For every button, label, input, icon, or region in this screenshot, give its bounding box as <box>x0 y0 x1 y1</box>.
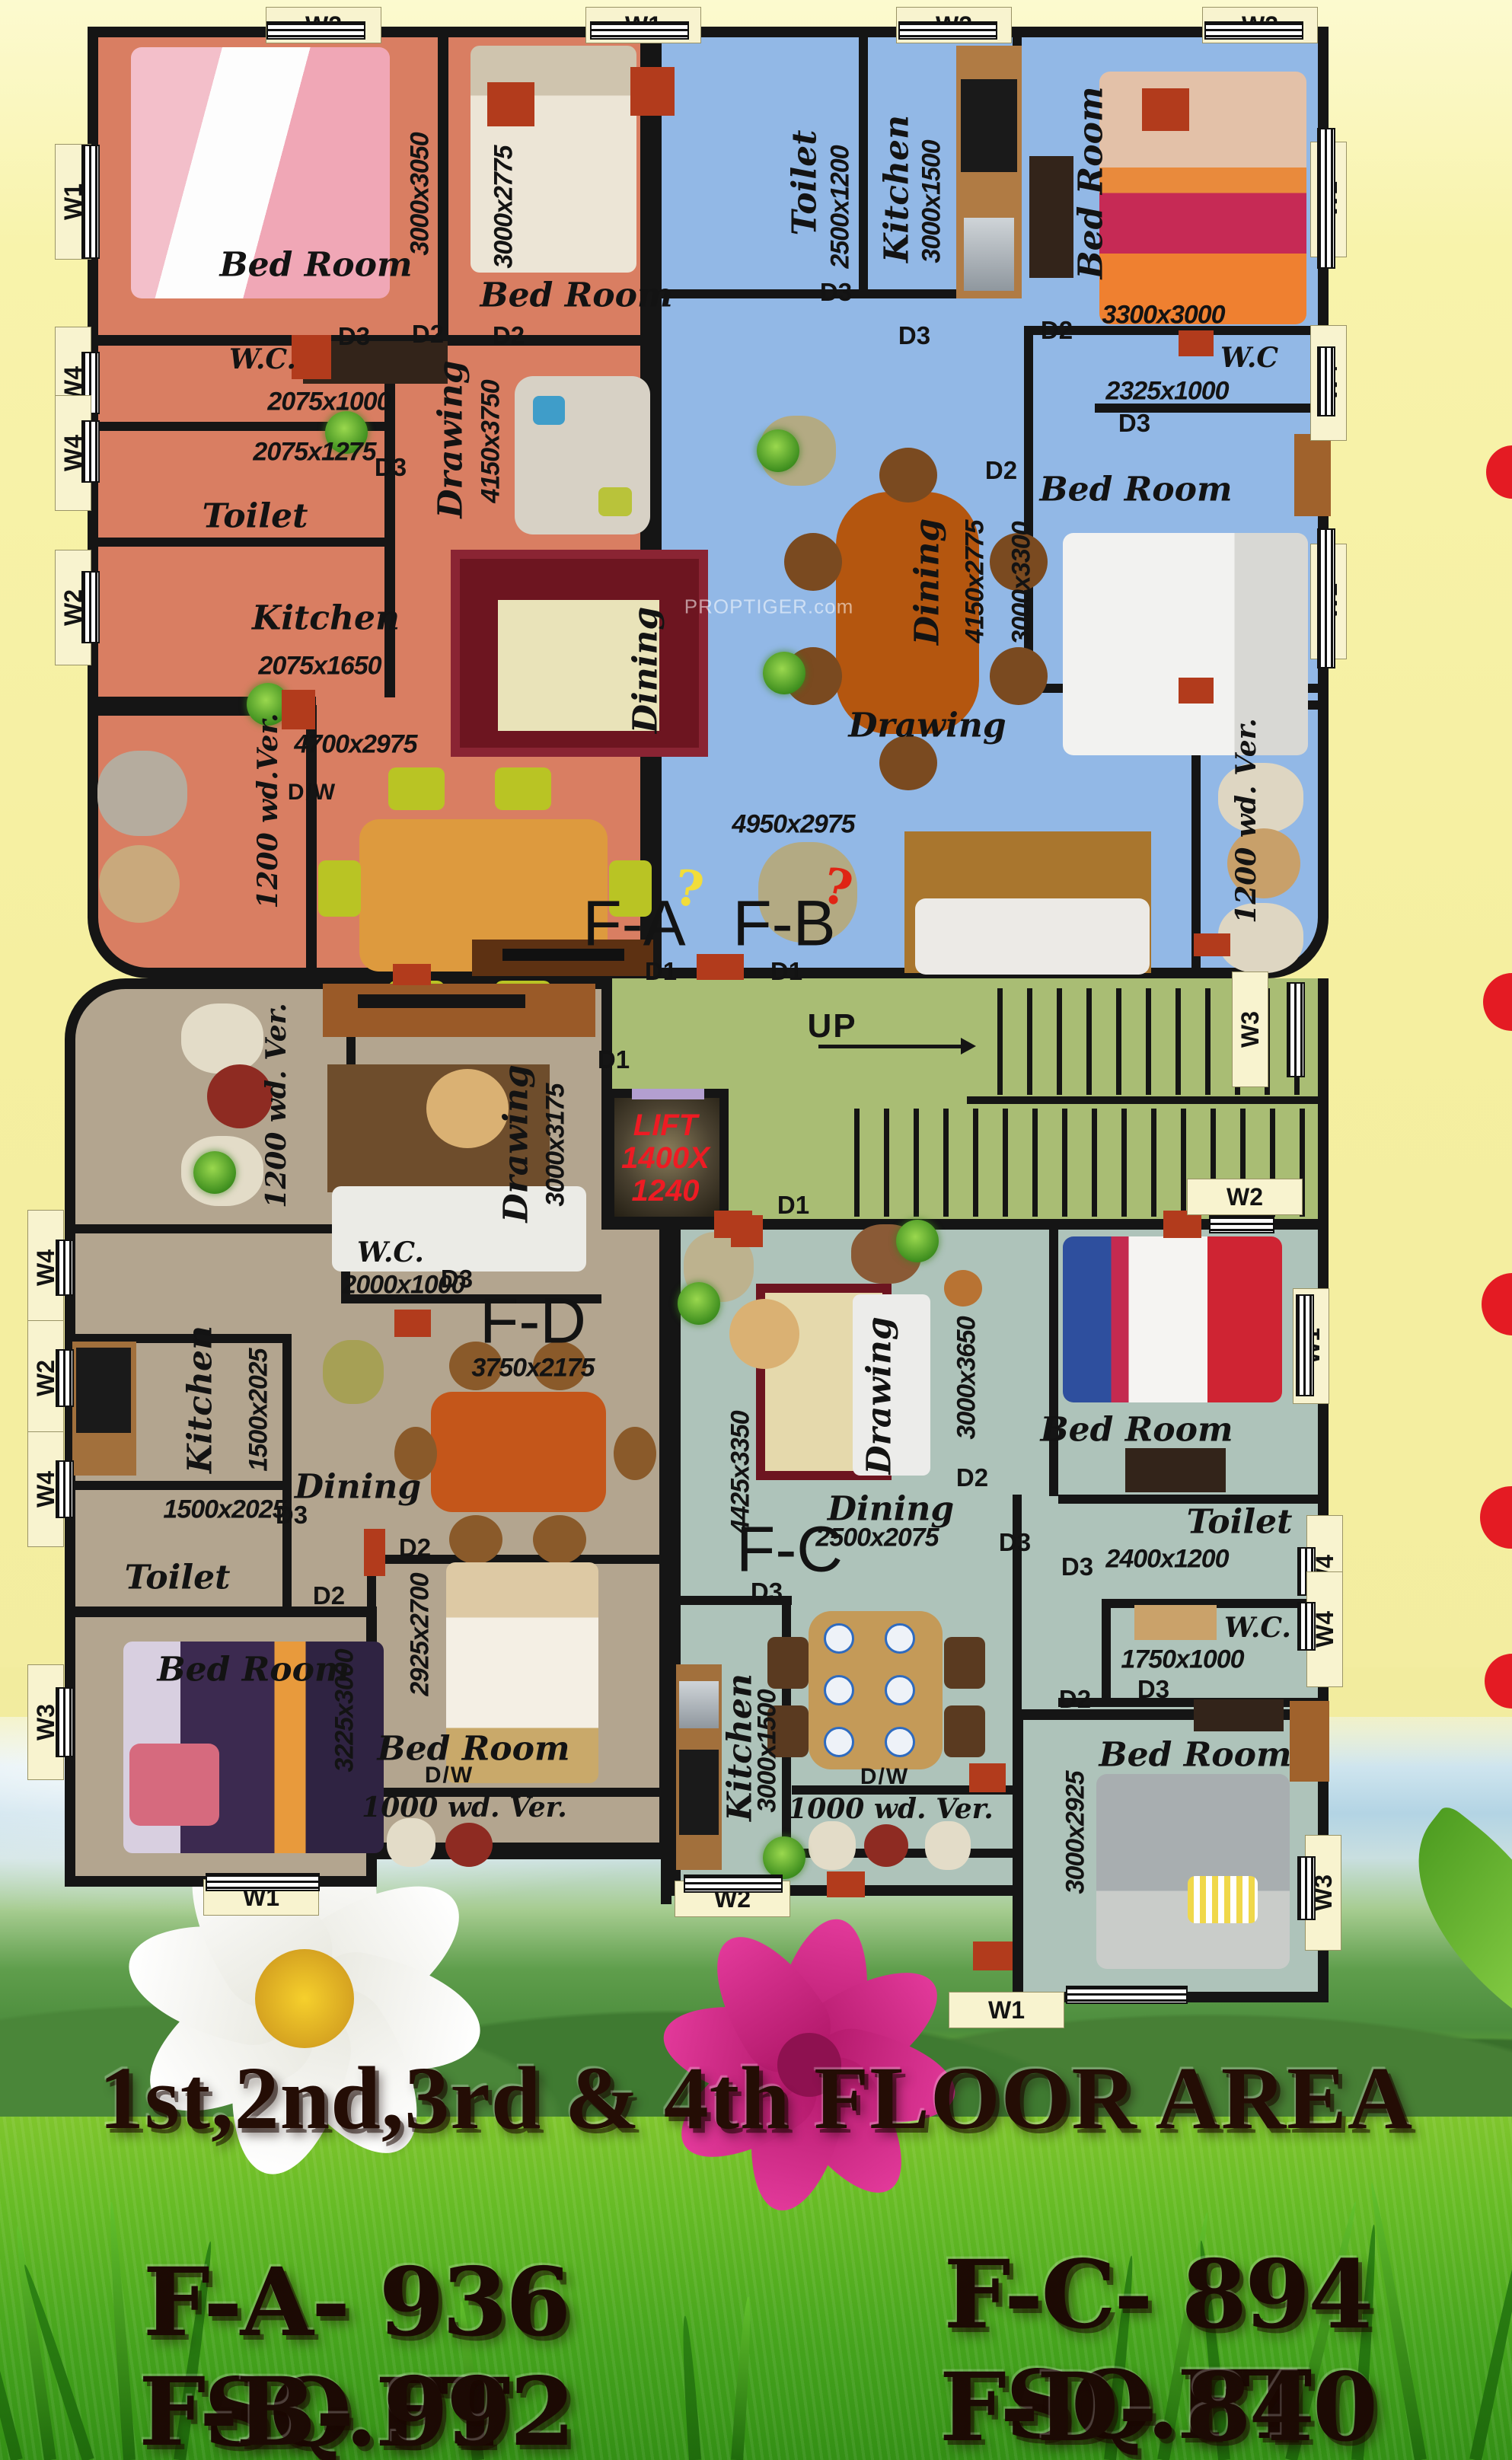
door-accent <box>487 82 534 126</box>
label-door: D2 <box>493 321 525 350</box>
label-room: W.C. <box>1224 1612 1291 1644</box>
label-door: D2 <box>399 1533 431 1562</box>
stove <box>961 79 1017 172</box>
label-dim: 4150x3750 <box>477 380 506 503</box>
label-door: D2 <box>985 456 1017 485</box>
stove <box>679 1750 719 1835</box>
label-unitlabel: F-D <box>480 1284 586 1358</box>
wall <box>661 1219 671 1904</box>
window-glazing <box>1287 982 1305 1077</box>
chair <box>533 1515 586 1564</box>
label-dw: D/W <box>425 1763 474 1788</box>
window-glazing <box>81 145 100 259</box>
wall <box>65 1481 292 1490</box>
label-room: Bed Room <box>1099 1736 1291 1775</box>
window-label-w3: W3 <box>1232 972 1268 1087</box>
dresser <box>1294 434 1331 516</box>
lift-lintel <box>632 1089 704 1099</box>
window-glazing <box>266 21 365 40</box>
label-room: Toilet <box>1187 1503 1293 1542</box>
wall <box>1102 1599 1111 1707</box>
stove <box>76 1348 131 1433</box>
label-dim: 2500x2075 <box>815 1524 938 1553</box>
door-accent <box>1142 88 1189 131</box>
wall <box>1049 1230 1058 1496</box>
label-room: Toilet <box>125 1559 231 1597</box>
cabinet <box>1290 1701 1329 1782</box>
label-door: D3 <box>338 322 370 351</box>
label-dim: 4425x3350 <box>726 1411 756 1533</box>
plant <box>763 1836 805 1879</box>
tv-console <box>323 984 595 1037</box>
door-accent <box>1179 678 1214 704</box>
label-door: D2 <box>1059 1685 1091 1714</box>
window-glazing <box>56 1349 74 1407</box>
window-glazing <box>1204 21 1303 40</box>
label-dim: 2925x2700 <box>406 1573 435 1696</box>
label-room: Toilet <box>203 497 308 536</box>
chair <box>944 1705 985 1757</box>
plate <box>824 1623 854 1654</box>
armchair <box>387 1818 435 1867</box>
door-accent <box>827 1871 865 1897</box>
wall <box>601 978 612 1230</box>
label-ver: 1200 wd. Ver. <box>1230 718 1262 924</box>
bed <box>1063 1236 1282 1402</box>
label-room: Drawing <box>860 1316 899 1474</box>
up-arrow-head <box>961 1038 976 1055</box>
label-dim: 1500x2025 <box>163 1495 285 1525</box>
label-door: D3 <box>820 278 852 307</box>
door-accent <box>292 335 331 379</box>
window-label-w1: W1 <box>949 1992 1064 2028</box>
label-dim: 3750x2175 <box>471 1354 594 1383</box>
label-room: Kitchen <box>181 1326 220 1473</box>
window-label-w2: W2 <box>1187 1179 1303 1215</box>
window-glazing <box>56 1687 74 1757</box>
window-glazing <box>56 1240 74 1296</box>
label-door: D3 <box>1061 1552 1093 1581</box>
window-glazing <box>1066 1986 1188 2004</box>
chair <box>449 1515 502 1564</box>
round-table <box>445 1823 493 1867</box>
label-dim: 2075x1000 <box>267 388 390 417</box>
label-room: Kitchen <box>252 599 400 638</box>
label-room: Bed Room <box>1040 1411 1233 1450</box>
plate <box>824 1727 854 1757</box>
pillow <box>129 1744 219 1826</box>
label-door: D2 <box>313 1581 345 1610</box>
window-glazing <box>1317 528 1335 668</box>
window-glazing <box>684 1875 783 1893</box>
label-room: Bed Room <box>157 1651 349 1689</box>
window-glazing <box>1209 1215 1274 1233</box>
label-room: Bed Room <box>1039 471 1232 509</box>
armchair <box>925 1821 971 1870</box>
wall <box>438 37 448 335</box>
door-accent <box>731 1215 763 1247</box>
label-dim: 3000x3050 <box>406 132 435 255</box>
label-room: Drawing <box>432 360 471 518</box>
bed <box>1063 533 1308 755</box>
sofa <box>915 898 1150 975</box>
sink <box>679 1681 719 1728</box>
door-accent <box>1179 330 1214 356</box>
label-wm: PROPTIGER.com <box>684 595 853 619</box>
plate <box>885 1623 915 1654</box>
label-unitlabel: F-A <box>582 887 685 961</box>
label-room: Toilet <box>786 130 825 236</box>
plate <box>885 1727 915 1757</box>
wall <box>65 1224 356 1233</box>
window-glazing <box>56 1460 74 1518</box>
label-dim: 3000x1500 <box>753 1689 783 1812</box>
label-dim: 4700x2975 <box>294 730 416 760</box>
label-door: D1 <box>770 957 802 986</box>
chair <box>767 1637 809 1689</box>
door-accent <box>364 1529 385 1576</box>
label-dim: 2075x1650 <box>258 652 381 681</box>
window-glazing <box>1297 1602 1316 1651</box>
label-room: Dining <box>627 607 665 733</box>
floor-area-title: 1st,2nd,3rd & 4th FLOOR AREA <box>0 2047 1512 2150</box>
door-accent <box>393 964 431 985</box>
vanity <box>1134 1605 1217 1640</box>
armchair <box>181 1003 263 1074</box>
label-room: Drawing <box>497 1064 536 1222</box>
label-door: D1 <box>645 957 677 986</box>
label-ver: 1000 wd. Ver. <box>788 1793 994 1825</box>
label-dim: 2500x1200 <box>826 145 856 268</box>
window-glazing <box>81 571 100 643</box>
label-door: D3 <box>898 321 930 350</box>
door-accent <box>394 1310 431 1337</box>
label-dw: D/W <box>288 780 337 806</box>
label-room: Drawing <box>848 707 1006 745</box>
chair <box>944 1637 985 1689</box>
tv <box>358 994 525 1008</box>
label-dim: 1500x2025 <box>244 1348 274 1471</box>
stairs-divider <box>967 1096 1321 1104</box>
chair <box>388 767 445 810</box>
plant <box>193 1151 236 1194</box>
label-door: D1 <box>777 1191 809 1220</box>
door-accent <box>1194 933 1230 956</box>
label-door: D3 <box>999 1528 1031 1557</box>
label-ver: 1200 wd. Ver. <box>260 1003 292 1208</box>
label-room: Dining <box>908 518 947 645</box>
armchair <box>323 1340 384 1404</box>
label-dim: 3300x3000 <box>1102 301 1224 330</box>
floor-plan-poster: Bed Room3000x3050Bed Room3000x2775W.C.20… <box>0 0 1512 2460</box>
wardrobe <box>1125 1448 1226 1492</box>
label-dim: 3000x3175 <box>541 1083 571 1206</box>
label-room: W.C. <box>357 1236 424 1268</box>
label-room: Kitchen <box>878 115 917 263</box>
label-dim: 1750x1000 <box>1121 1645 1243 1675</box>
label-dim: 3000x2775 <box>490 145 519 268</box>
plant <box>896 1220 939 1262</box>
plant <box>763 652 805 694</box>
door-accent <box>282 690 315 729</box>
area-fd: F-D- 840 SQ.FT <box>813 2353 1502 2460</box>
window-glazing <box>1317 346 1335 416</box>
label-door: D2 <box>956 1463 988 1492</box>
label-room: Bed Room <box>480 276 672 315</box>
label-door: D3 <box>751 1578 783 1606</box>
sink <box>964 218 1014 291</box>
door-accent <box>969 1763 1006 1792</box>
label-up: UP <box>807 1007 856 1045</box>
label-ver: 1000 wd. Ver. <box>362 1792 567 1823</box>
window-glazing <box>1317 128 1335 269</box>
label-dim: 4950x2975 <box>732 810 854 840</box>
window-glazing <box>590 21 689 40</box>
label-door: D2 <box>412 320 444 349</box>
label-dw: D/W <box>860 1764 909 1790</box>
label-room: W.C <box>1220 342 1278 374</box>
label-dim: 2075x1275 <box>253 438 375 467</box>
label-door: D3 <box>1118 409 1150 438</box>
plant <box>757 429 799 472</box>
label-door: D3 <box>1137 1675 1169 1704</box>
window-glazing <box>206 1873 320 1891</box>
armchair <box>809 1821 856 1870</box>
pillow <box>1188 1876 1258 1923</box>
chair <box>614 1427 656 1480</box>
wall <box>282 1334 292 1616</box>
plant <box>678 1282 720 1325</box>
label-dim: 3000x2925 <box>1061 1771 1091 1894</box>
label-door: D2 <box>1041 316 1073 345</box>
bed <box>1099 72 1306 324</box>
round-table <box>99 845 180 923</box>
round-table <box>864 1824 908 1867</box>
window-glazing <box>1296 1294 1314 1396</box>
chair <box>990 647 1048 705</box>
label-dim: 4150x2775 <box>961 520 990 643</box>
label-dim: 3225x3000 <box>330 1649 360 1772</box>
door-accent <box>973 1942 1013 1970</box>
wall <box>65 1606 301 1616</box>
area-fb: F-B- 992 SQ.FT <box>11 2357 700 2460</box>
side-table <box>944 1270 982 1307</box>
label-dim: 2400x1200 <box>1105 1545 1228 1575</box>
wall <box>859 37 868 292</box>
label-door: D1 <box>598 1045 630 1074</box>
label-door: D3 <box>375 453 407 482</box>
label-dim: 3000x1500 <box>917 140 947 263</box>
window-glazing <box>1297 1856 1316 1920</box>
chair <box>318 860 361 917</box>
dining-table <box>431 1392 606 1512</box>
plate <box>885 1675 915 1705</box>
wardrobe <box>1029 156 1073 278</box>
label-room: Dining <box>295 1468 421 1507</box>
plate <box>824 1675 854 1705</box>
armchair <box>97 751 187 836</box>
label-dim: 3000x3650 <box>952 1316 982 1439</box>
wardrobe <box>1194 1699 1284 1731</box>
bed <box>1096 1774 1290 1969</box>
label-dim: 2325x1000 <box>1105 377 1228 407</box>
chair <box>495 767 551 810</box>
wall <box>1318 978 1329 1230</box>
label-lift: LIFT 1400X 1240 <box>621 1109 710 1208</box>
chair <box>879 448 937 503</box>
chair <box>784 533 842 591</box>
label-door: D3 <box>441 1265 473 1294</box>
cushion <box>533 396 565 425</box>
round-rug <box>729 1299 799 1369</box>
window-glazing <box>898 21 997 40</box>
door-accent <box>630 67 675 116</box>
wall <box>98 538 384 547</box>
window-glazing <box>81 420 100 483</box>
label-room: Bed Room <box>219 246 412 285</box>
label-room: W.C. <box>229 343 296 375</box>
label-dim: 3000x3300 <box>1007 522 1037 644</box>
label-ver: 1200 wd.Ver. <box>252 713 284 908</box>
cushion <box>598 487 632 516</box>
label-door: D3 <box>276 1501 308 1530</box>
label-room: Bed Room <box>1072 86 1111 279</box>
